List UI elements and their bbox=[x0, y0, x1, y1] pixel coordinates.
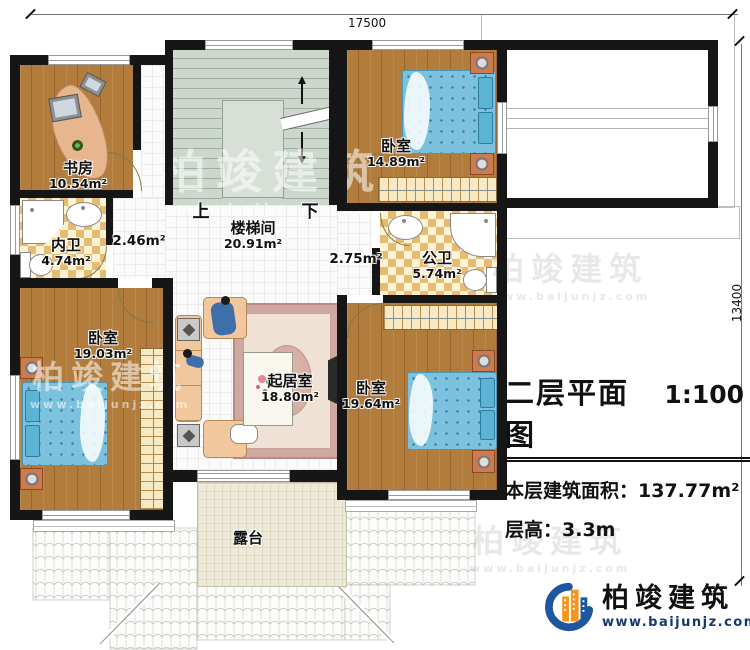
window bbox=[10, 375, 20, 460]
area-label-hall-right: 2.75m² bbox=[329, 252, 382, 268]
stair-arrow-line bbox=[301, 132, 303, 156]
plan-title-row: 二层平面图 1:100 bbox=[505, 370, 750, 462]
company-name: 柏竣建筑 bbox=[602, 585, 750, 612]
top-dimension-line bbox=[30, 14, 738, 15]
company-url: www.baijunjz.com bbox=[602, 615, 750, 630]
room-label-inner-bath: 内卫 4.74m² bbox=[41, 237, 90, 269]
floor-height-label: 层高： bbox=[505, 519, 562, 541]
window-sill bbox=[33, 520, 175, 532]
nightstand bbox=[470, 153, 494, 175]
nightstand bbox=[472, 350, 495, 372]
window bbox=[708, 106, 718, 142]
wall bbox=[290, 470, 337, 482]
terrace-floor bbox=[197, 482, 347, 587]
plan-title: 二层平面图 bbox=[505, 370, 652, 454]
void-roof-lines bbox=[507, 108, 708, 138]
computer-monitor bbox=[48, 94, 82, 123]
pillow bbox=[478, 112, 493, 144]
wall bbox=[133, 65, 141, 150]
stair-up-label: 上 bbox=[193, 197, 210, 222]
wall bbox=[165, 40, 173, 205]
floor-plan-canvas: 17500 13400 bbox=[0, 0, 750, 650]
title-block: 二层平面图 1:100 本层建筑面积：137.77m² 层高：3.3m bbox=[505, 370, 750, 542]
shower-drain bbox=[484, 219, 488, 223]
ottoman bbox=[230, 424, 258, 444]
window bbox=[388, 490, 470, 500]
shower-drain bbox=[30, 208, 34, 212]
wardrobe bbox=[378, 177, 497, 202]
nightstand bbox=[470, 52, 494, 74]
plant bbox=[72, 140, 83, 151]
room-label-bedroom-top: 卧室 14.89m² bbox=[367, 138, 425, 170]
room-label-living: 起居室 18.80m² bbox=[261, 373, 319, 405]
top-dimension-value: 17500 bbox=[348, 16, 386, 30]
floor-height-row: 层高：3.3m bbox=[505, 515, 750, 542]
company-logo-icon bbox=[540, 580, 596, 634]
toilet-tank bbox=[486, 267, 497, 293]
nightstand bbox=[20, 357, 43, 379]
stair-down-label: 下 bbox=[302, 197, 319, 222]
wardrobe bbox=[140, 348, 165, 510]
room-label-terrace: 露台 bbox=[233, 530, 263, 547]
dimension-tick bbox=[734, 36, 745, 47]
pillow bbox=[25, 390, 40, 422]
room-label-bedroom-right: 卧室 19.64m² bbox=[342, 380, 400, 412]
floor-area-value: 137.77m² bbox=[638, 480, 739, 502]
wall bbox=[163, 278, 173, 520]
watermark: 柏竣建筑 www.baijunjz.com bbox=[490, 244, 650, 303]
wall bbox=[337, 295, 347, 303]
area-label-hall-left: 2.46m² bbox=[112, 234, 165, 250]
stair-arrow-down bbox=[298, 156, 306, 168]
window bbox=[48, 55, 130, 65]
window-sill bbox=[345, 500, 477, 512]
toilet bbox=[463, 269, 487, 291]
wall bbox=[10, 278, 118, 288]
company-logo-text: 柏竣建筑 www.baijunjz.com bbox=[602, 585, 750, 630]
plan-scale: 1:100 bbox=[664, 380, 744, 409]
side-table bbox=[177, 424, 200, 447]
hall-floor bbox=[141, 65, 165, 198]
window bbox=[497, 102, 507, 154]
floor-area-row: 本层建筑面积：137.77m² bbox=[505, 476, 750, 503]
side-table bbox=[177, 318, 200, 341]
room-label-stairwell: 楼梯间 20.91m² bbox=[224, 220, 282, 252]
stair-landing bbox=[222, 100, 284, 198]
window bbox=[42, 510, 130, 520]
door-study bbox=[108, 152, 142, 191]
floor-area-label: 本层建筑面积： bbox=[505, 480, 638, 502]
room-label-study: 书房 10.54m² bbox=[49, 160, 107, 192]
room-label-bedroom-left: 卧室 19.03m² bbox=[74, 330, 132, 362]
floor-height-value: 3.3m bbox=[562, 519, 615, 541]
person-head bbox=[221, 296, 230, 305]
nightstand bbox=[472, 450, 495, 473]
stair-arrow-up bbox=[298, 72, 306, 84]
pillow bbox=[480, 410, 495, 440]
wall bbox=[165, 470, 197, 482]
pillow bbox=[478, 77, 493, 109]
nightstand bbox=[20, 468, 43, 490]
person bbox=[210, 301, 237, 337]
pillow bbox=[25, 425, 40, 457]
window bbox=[10, 205, 20, 255]
wardrobe bbox=[383, 305, 499, 330]
tv bbox=[328, 356, 337, 404]
room-label-public-bath: 公卫 5.74m² bbox=[412, 250, 461, 282]
faucet bbox=[81, 206, 85, 210]
person-head bbox=[183, 349, 192, 358]
terrace-sliding-door bbox=[197, 470, 290, 482]
stair-flight-left bbox=[173, 98, 222, 205]
company-logo: 柏竣建筑 www.baijunjz.com bbox=[540, 580, 750, 634]
window bbox=[205, 40, 293, 50]
wall bbox=[383, 295, 507, 303]
wall bbox=[337, 40, 347, 150]
wall bbox=[337, 203, 507, 211]
wall bbox=[497, 198, 718, 208]
right-dimension-value: 13400 bbox=[730, 284, 744, 322]
pillow bbox=[480, 378, 495, 408]
eave-outline bbox=[505, 206, 740, 239]
window bbox=[372, 40, 464, 50]
